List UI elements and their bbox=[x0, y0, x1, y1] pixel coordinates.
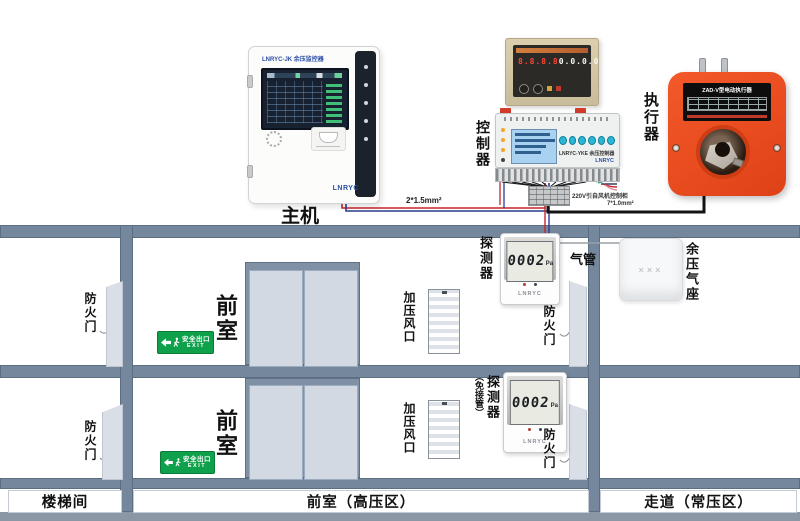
controller-button bbox=[598, 136, 606, 145]
elevator-door-right bbox=[304, 270, 358, 367]
pressure-value: 0002 bbox=[511, 395, 550, 411]
detector2-label: 探测器 bbox=[486, 375, 499, 420]
air-seat: ××× bbox=[619, 238, 683, 301]
detector-brand: LNRYC bbox=[504, 439, 566, 445]
exit-sign-subtext: EXIT bbox=[188, 463, 206, 469]
mechanism-bolt bbox=[732, 158, 744, 168]
zone-corridor-normal-pressure: 走道（常压区） bbox=[600, 490, 797, 513]
controller-button bbox=[607, 136, 615, 145]
remote-display-left-digits: 8.8.8.8 bbox=[518, 57, 559, 66]
remote-display-right-digits: 0.0.0.0 bbox=[559, 57, 600, 66]
host-hinge-bottom bbox=[247, 165, 253, 178]
host-cable-spec-label: 2*1.5mm² bbox=[406, 196, 442, 205]
pressurized-vent-f2 bbox=[428, 400, 460, 459]
host-indicator-strip bbox=[355, 51, 376, 197]
controller-label: 控制器 bbox=[476, 120, 490, 168]
vent-label-f1: 加压风口 bbox=[403, 291, 415, 343]
elevator-door-right bbox=[304, 385, 358, 480]
led-red-icon bbox=[528, 428, 531, 431]
exit-arrow-icon bbox=[161, 337, 171, 348]
front-room-label-f2: 前室 bbox=[214, 409, 236, 459]
actuator-label: 执行器 bbox=[643, 92, 658, 143]
host-screen-toolbar bbox=[267, 73, 342, 78]
fire-door-f1-right bbox=[569, 281, 587, 367]
indicator-chip bbox=[547, 86, 552, 91]
mechanism-shaft-hole bbox=[715, 142, 730, 157]
fire-door-label: 防火门 bbox=[84, 292, 96, 334]
remote-display-controls bbox=[519, 84, 586, 93]
controller-button bbox=[578, 136, 586, 145]
host-printer bbox=[311, 127, 346, 151]
controller-button bbox=[588, 136, 596, 145]
actuator-warning-line bbox=[687, 115, 767, 118]
detector2-sublabel: （免接管） bbox=[474, 372, 483, 417]
controller-brand-logo: LNRYC bbox=[595, 158, 614, 164]
led-red-icon bbox=[523, 283, 526, 286]
fire-door-f2-left bbox=[102, 404, 123, 480]
actuator-screw bbox=[773, 144, 781, 152]
actuator-cable-spec-label: 7*1.0mm² bbox=[607, 201, 634, 207]
controller-module: LNRYC-YKE 余压控制器 LNRYC bbox=[495, 113, 620, 168]
fire-door-f2-right bbox=[569, 404, 587, 480]
detector-leds bbox=[523, 283, 537, 286]
indicator-chip bbox=[556, 86, 561, 91]
fire-door-label: 防火门 bbox=[84, 420, 96, 462]
remote-display-panel: 8.8.8.8 0.0.0.0 bbox=[513, 45, 591, 97]
controller-model-text: LNRYC-YKE 余压控制器 bbox=[559, 150, 614, 157]
exit-sign-text: 安全出口 bbox=[183, 456, 211, 463]
actuator-mechanism bbox=[696, 125, 750, 179]
exit-arrow-icon bbox=[164, 457, 173, 468]
host-hinge-top bbox=[247, 75, 253, 88]
pressure-value: 0002 bbox=[506, 253, 545, 269]
host-cabinet: LNRYC-JK 余压监控器 LNRYC bbox=[248, 46, 380, 204]
detector1-label: 探测器 bbox=[479, 236, 492, 281]
controller-button bbox=[559, 136, 567, 145]
actuator-body: ZAD-V型电动执行器 bbox=[668, 72, 786, 196]
detector-leds bbox=[528, 428, 542, 431]
actuator-title-text: ZAD-V型电动执行器 bbox=[683, 83, 771, 94]
actuator-spec-table bbox=[687, 97, 767, 111]
elevator-door-left bbox=[249, 385, 303, 480]
exit-sign-f2: 安全出口 EXIT bbox=[160, 451, 215, 474]
detector-lcd: 0002 Pa bbox=[510, 380, 560, 425]
pressure-system-diagram: LNRYC-JK 余压监控器 LNRYC 主机 控制器 8.8.8.8 0.0.… bbox=[0, 0, 800, 521]
host-label: 主机 bbox=[268, 201, 332, 228]
front-room-label-f1: 前室 bbox=[214, 294, 236, 344]
detector-lcd: 0002 Pa bbox=[506, 241, 553, 282]
air-seat-label: 余压气座 bbox=[685, 242, 698, 302]
pressurized-vent-f1 bbox=[428, 289, 460, 354]
controller-remote-display: 8.8.8.8 0.0.0.0 bbox=[505, 38, 599, 106]
actuator-screw bbox=[672, 144, 680, 152]
running-man-icon bbox=[173, 336, 180, 349]
host-screen bbox=[261, 68, 349, 130]
exit-sign-f1: 安全出口 EXIT bbox=[157, 331, 214, 354]
exit-sign-subtext: EXIT bbox=[187, 343, 205, 349]
running-man-icon bbox=[175, 456, 181, 469]
fire-door-label: 防火门 bbox=[543, 428, 555, 470]
exit-sign-text: 安全出口 bbox=[182, 336, 210, 343]
zone-stairwell: 楼梯间 bbox=[8, 490, 122, 513]
power-note-label: 220V引自风机控制柜 bbox=[572, 191, 628, 200]
detector-brand: LNRYC bbox=[501, 291, 559, 297]
controller-buttons bbox=[559, 136, 615, 145]
controller-terminal-strip bbox=[495, 168, 620, 182]
module-vents bbox=[504, 117, 611, 121]
pressure-detector-f1: 0002 Pa LNRYC bbox=[500, 233, 560, 305]
module-leds bbox=[501, 128, 507, 162]
pressure-unit: Pa bbox=[546, 261, 553, 267]
elevator-door-left bbox=[249, 270, 303, 367]
host-brand-logo: LNRYC bbox=[333, 185, 359, 192]
host-speaker-icon bbox=[266, 131, 282, 147]
junction-terminal-block bbox=[528, 186, 570, 206]
host-model-text: LNRYC-JK 余压监控器 bbox=[262, 54, 324, 63]
pressure-detector-f2: 0002 Pa LNRYC bbox=[503, 372, 567, 453]
fire-door-f1-left bbox=[106, 281, 123, 367]
controller-lcd bbox=[511, 129, 557, 164]
air-tube-label: 气管 bbox=[570, 249, 596, 268]
elevator-f2 bbox=[245, 378, 360, 478]
led-dark-icon bbox=[534, 283, 537, 286]
zone-front-room-high-pressure: 前室（高压区） bbox=[133, 490, 589, 513]
knob-icon bbox=[519, 84, 529, 94]
knob-icon bbox=[533, 84, 543, 94]
air-seat-pattern: ××× bbox=[620, 265, 682, 275]
fire-door-label: 防火门 bbox=[543, 305, 555, 347]
controller-button bbox=[569, 136, 577, 145]
remote-display-title-strip bbox=[516, 48, 588, 53]
actuator-nameplate: ZAD-V型电动执行器 bbox=[683, 83, 771, 121]
elevator-f1 bbox=[245, 262, 360, 365]
pressure-unit: Pa bbox=[551, 403, 558, 409]
host-screen-grid bbox=[267, 81, 323, 123]
host-screen-status-cells bbox=[326, 81, 342, 123]
vent-label-f2: 加压风口 bbox=[403, 402, 415, 454]
